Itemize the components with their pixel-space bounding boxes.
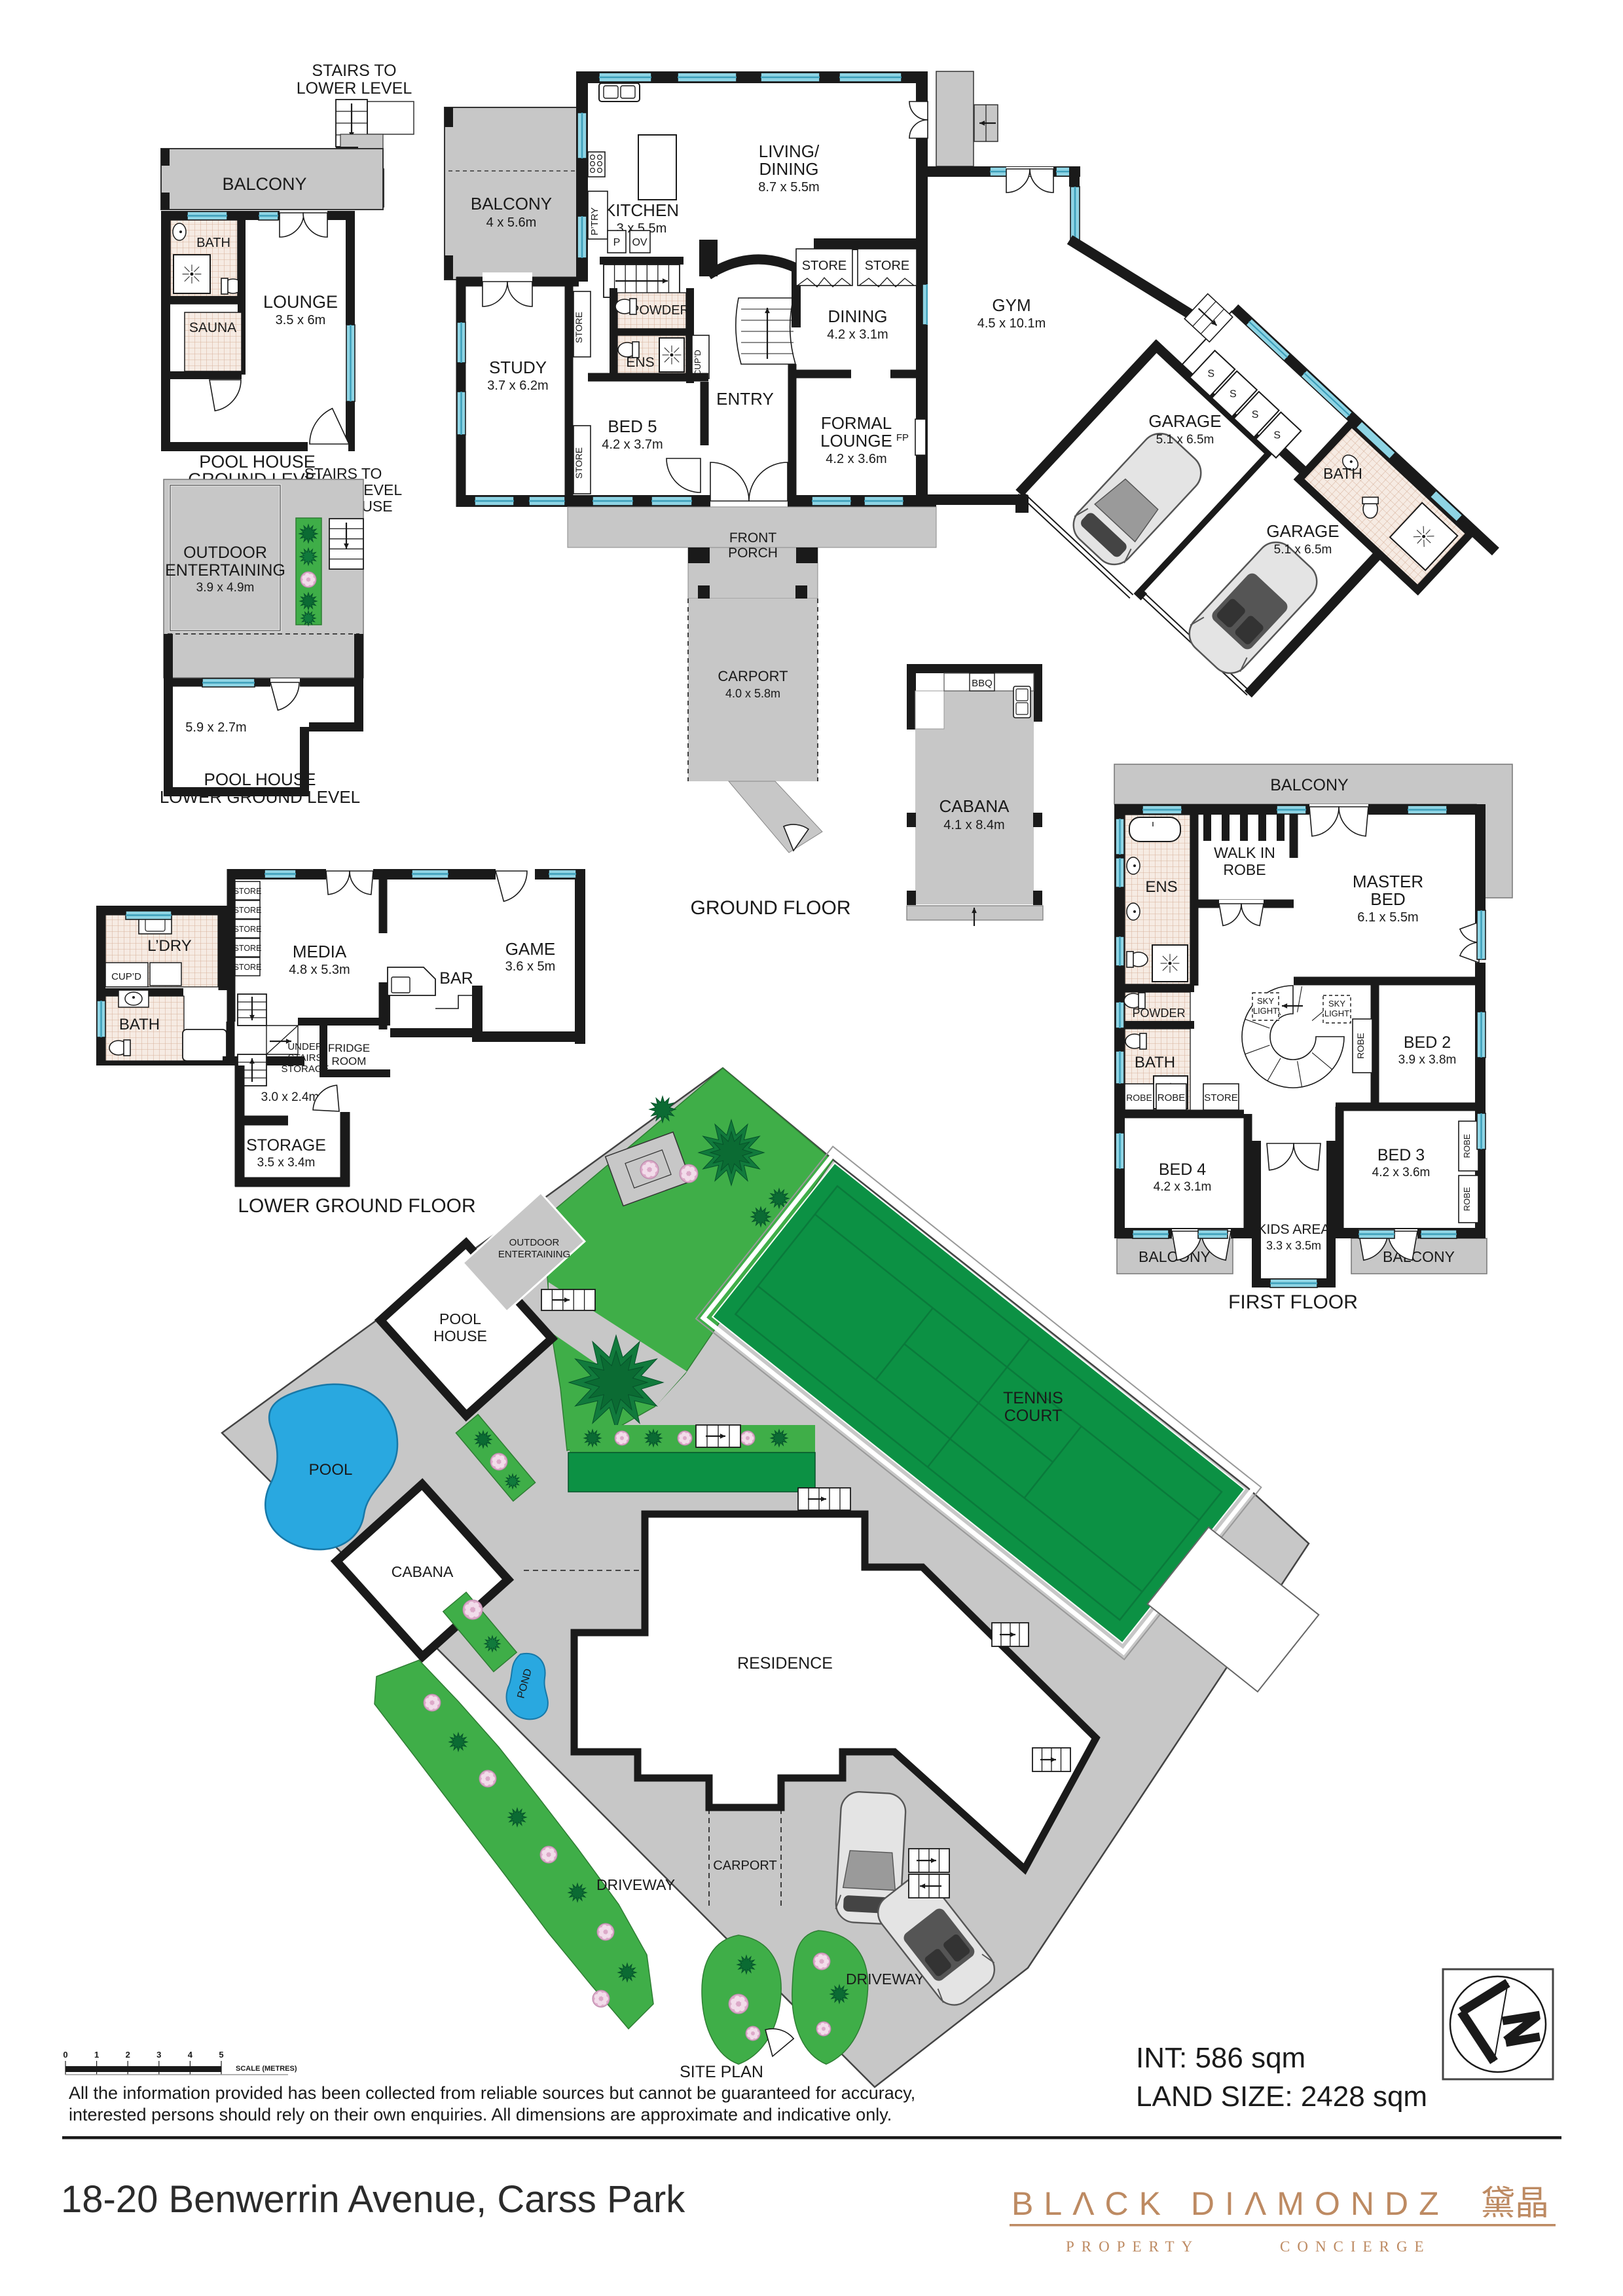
svg-text:STORE: STORE <box>234 963 262 972</box>
svg-text:ENTERTAINING: ENTERTAINING <box>498 1249 570 1260</box>
svg-text:STORE: STORE <box>234 944 262 953</box>
svg-text:GARAGE: GARAGE <box>1148 411 1221 431</box>
svg-text:OV: OV <box>632 237 647 248</box>
svg-text:4.0 x 5.8m: 4.0 x 5.8m <box>725 687 780 700</box>
svg-text:MASTER: MASTER <box>1353 872 1423 891</box>
svg-text:FORMAL: FORMAL <box>821 413 892 433</box>
svg-text:OUTDOOR: OUTDOOR <box>183 544 267 562</box>
svg-text:COURT: COURT <box>1004 1407 1062 1425</box>
svg-text:4 x 5.6m: 4 x 5.6m <box>486 215 537 230</box>
svg-text:PORCH: PORCH <box>728 546 778 561</box>
svg-text:TENNIS: TENNIS <box>1003 1389 1063 1407</box>
svg-text:BATH: BATH <box>1323 465 1362 482</box>
svg-text:4.5 x 10.1m: 4.5 x 10.1m <box>977 316 1046 331</box>
svg-text:STORAGE: STORAGE <box>246 1136 326 1155</box>
svg-text:BED 3: BED 3 <box>1377 1146 1425 1164</box>
svg-text:LIGHT: LIGHT <box>1324 1009 1349 1018</box>
svg-text:4.2 x 3.1m: 4.2 x 3.1m <box>1154 1180 1212 1194</box>
svg-text:ENS: ENS <box>1145 878 1177 896</box>
svg-text:3.6 x 5m: 3.6 x 5m <box>505 959 556 974</box>
svg-text:FP: FP <box>896 432 909 443</box>
svg-text:ROBE: ROBE <box>1355 1033 1366 1059</box>
svg-text:5.9 x 2.7m: 5.9 x 2.7m <box>185 720 246 735</box>
svg-text:All the information provided h: All the information provided has been co… <box>69 2083 915 2103</box>
svg-text:LOUNGE: LOUNGE <box>820 431 892 451</box>
svg-text:BALCONY: BALCONY <box>1383 1248 1455 1265</box>
svg-text:STORE: STORE <box>234 906 262 915</box>
svg-text:P: P <box>613 237 621 248</box>
svg-text:L’DRY: L’DRY <box>147 937 192 955</box>
svg-text:5.1 x 6.5m: 5.1 x 6.5m <box>1274 543 1332 557</box>
svg-text:KIDS AREA: KIDS AREA <box>1258 1222 1330 1237</box>
svg-text:LIVING/: LIVING/ <box>759 141 820 161</box>
svg-text:ENS: ENS <box>626 355 654 370</box>
svg-text:1: 1 <box>94 2050 99 2060</box>
svg-text:BED 4: BED 4 <box>1159 1160 1206 1179</box>
svg-text:4.8 x 5.3m: 4.8 x 5.3m <box>289 963 350 977</box>
svg-text:PROPERTY: PROPERTY <box>1066 2238 1199 2255</box>
svg-text:BED 2: BED 2 <box>1404 1033 1451 1052</box>
svg-text:5.1 x 6.5m: 5.1 x 6.5m <box>1156 433 1214 447</box>
svg-text:4.2 x 3.6m: 4.2 x 3.6m <box>826 452 886 466</box>
svg-text:2: 2 <box>126 2050 130 2060</box>
svg-text:6.1 x 5.5m: 6.1 x 5.5m <box>1357 910 1418 925</box>
svg-text:STAIRS TO: STAIRS TO <box>312 62 396 80</box>
svg-text:LOUNGE: LOUNGE <box>263 292 338 312</box>
svg-text:STUDY: STUDY <box>489 358 547 377</box>
svg-text:SAUNA: SAUNA <box>189 320 236 335</box>
svg-text:4.2 x 3.7m: 4.2 x 3.7m <box>602 437 663 452</box>
svg-text:ROBE: ROBE <box>1462 1187 1472 1211</box>
svg-text:3: 3 <box>156 2050 161 2060</box>
svg-text:8.7 x 5.5m: 8.7 x 5.5m <box>758 180 819 194</box>
svg-text:BATH: BATH <box>196 236 230 250</box>
svg-text:BALCONY: BALCONY <box>471 194 552 213</box>
svg-text:S: S <box>1230 389 1237 400</box>
svg-text:UNDER: UNDER <box>287 1041 323 1052</box>
svg-text:DRIVEWAY: DRIVEWAY <box>596 1876 675 1893</box>
svg-text:BATH: BATH <box>119 1016 160 1033</box>
svg-text:CARPORT: CARPORT <box>713 1859 776 1873</box>
svg-text:4.2 x 3.1m: 4.2 x 3.1m <box>827 327 888 342</box>
svg-text:FIRST FLOOR: FIRST FLOOR <box>1228 1291 1358 1313</box>
svg-text:STORE: STORE <box>802 259 847 273</box>
svg-text:CUP’D: CUP’D <box>693 350 702 376</box>
svg-text:GAME: GAME <box>505 939 556 959</box>
svg-text:3.0 x 2.4m: 3.0 x 2.4m <box>261 1090 319 1104</box>
svg-text:3.9 x 3.8m: 3.9 x 3.8m <box>1398 1053 1457 1067</box>
svg-text:4.2 x 3.6m: 4.2 x 3.6m <box>1372 1166 1431 1179</box>
svg-text:POOL: POOL <box>309 1461 353 1479</box>
svg-text:INT: 586 sqm: INT: 586 sqm <box>1136 2042 1305 2074</box>
svg-text:LOWER GROUND LEVEL: LOWER GROUND LEVEL <box>160 787 360 807</box>
svg-text:3.3 x 3.5m: 3.3 x 3.5m <box>1266 1239 1321 1252</box>
svg-text:DINING: DINING <box>828 306 888 326</box>
svg-text:POWDER: POWDER <box>630 303 689 318</box>
svg-text:黛晶: 黛晶 <box>1481 2185 1549 2223</box>
svg-text:BALCONY: BALCONY <box>1139 1248 1211 1265</box>
svg-text:STORE: STORE <box>1204 1092 1237 1103</box>
svg-text:BED 5: BED 5 <box>608 417 657 436</box>
svg-text:OUTDOOR: OUTDOOR <box>509 1237 560 1248</box>
svg-text:interested persons should rely: interested persons should rely on their … <box>69 2105 892 2124</box>
svg-text:STORE: STORE <box>574 312 584 343</box>
svg-text:STORE: STORE <box>865 259 910 273</box>
svg-text:BED: BED <box>1370 889 1405 909</box>
svg-text:5: 5 <box>219 2050 223 2060</box>
svg-text:BALCONY: BALCONY <box>1270 776 1349 794</box>
svg-text:0: 0 <box>63 2050 67 2060</box>
svg-text:MEDIA: MEDIA <box>293 942 347 961</box>
svg-text:S: S <box>1207 368 1214 379</box>
svg-text:LOWER LEVEL: LOWER LEVEL <box>297 79 412 98</box>
svg-text:18-20 Benwerrin Avenue, Carss: 18-20 Benwerrin Avenue, Carss Park <box>61 2178 685 2221</box>
svg-text:ROBE: ROBE <box>1126 1092 1152 1103</box>
svg-text:FRONT: FRONT <box>729 530 776 546</box>
svg-text:S: S <box>1252 409 1259 420</box>
svg-text:P’TRY: P’TRY <box>589 207 600 235</box>
svg-text:KITCHEN: KITCHEN <box>604 200 679 220</box>
svg-text:DINING: DINING <box>759 159 819 179</box>
svg-text:HOUSE: HOUSE <box>433 1327 487 1344</box>
svg-text:GARAGE: GARAGE <box>1266 521 1339 541</box>
svg-text:SKY: SKY <box>1257 996 1274 1006</box>
svg-text:3.5 x 6m: 3.5 x 6m <box>276 313 326 327</box>
svg-text:ENTRY: ENTRY <box>716 389 774 409</box>
svg-text:GYM: GYM <box>992 295 1030 315</box>
svg-text:ROOM: ROOM <box>332 1055 367 1067</box>
svg-text:POOL: POOL <box>439 1310 481 1327</box>
svg-text:ROBE: ROBE <box>1462 1134 1472 1158</box>
svg-text:BALCONY: BALCONY <box>222 174 306 194</box>
svg-text:CUP’D: CUP’D <box>111 971 141 982</box>
svg-text:CONCIERGE: CONCIERGE <box>1280 2238 1431 2255</box>
svg-text:FRIDGE: FRIDGE <box>328 1042 370 1054</box>
svg-text:BLΛCK DIΛMΟNDZ: BLΛCK DIΛMΟNDZ <box>1012 2185 1450 2222</box>
svg-text:LOWER GROUND FLOOR: LOWER GROUND FLOOR <box>238 1195 475 1217</box>
svg-text:BATH: BATH <box>1135 1054 1175 1071</box>
svg-text:WALK IN: WALK IN <box>1214 844 1275 861</box>
svg-text:S: S <box>1273 430 1281 441</box>
svg-text:STORE: STORE <box>574 447 584 479</box>
svg-text:3.5 x 3.4m: 3.5 x 3.4m <box>257 1156 316 1170</box>
svg-text:BBQ: BBQ <box>972 678 993 689</box>
svg-text:ENTERTAINING: ENTERTAINING <box>165 561 285 580</box>
svg-text:SITE PLAN: SITE PLAN <box>680 2063 763 2081</box>
svg-text:RESIDENCE: RESIDENCE <box>737 1654 833 1673</box>
svg-text:3.7 x 6.2m: 3.7 x 6.2m <box>487 379 548 393</box>
svg-text:CABANA: CABANA <box>939 796 1010 816</box>
svg-text:STAIRS: STAIRS <box>287 1052 322 1064</box>
svg-text:CABANA: CABANA <box>392 1563 454 1580</box>
svg-text:CARPORT: CARPORT <box>718 668 788 684</box>
svg-text:3.9 x 4.9m: 3.9 x 4.9m <box>196 581 255 595</box>
svg-text:LIGHT: LIGHT <box>1253 1006 1278 1016</box>
svg-text:POOL HOUSE: POOL HOUSE <box>204 769 316 789</box>
svg-text:BAR: BAR <box>439 969 473 988</box>
svg-text:4: 4 <box>188 2050 193 2060</box>
svg-text:ROBE: ROBE <box>1223 861 1266 878</box>
svg-text:STORE: STORE <box>234 887 262 896</box>
svg-text:SKY: SKY <box>1328 999 1345 1009</box>
svg-text:4.1 x 8.4m: 4.1 x 8.4m <box>943 818 1004 832</box>
svg-text:POOL HOUSE: POOL HOUSE <box>199 452 316 472</box>
svg-text:LAND SIZE: 2428 sqm: LAND SIZE: 2428 sqm <box>1136 2081 1427 2113</box>
svg-text:STORE: STORE <box>234 925 262 934</box>
svg-text:GROUND FLOOR: GROUND FLOOR <box>690 897 850 919</box>
svg-text:DRIVEWAY: DRIVEWAY <box>846 1971 924 1988</box>
svg-text:SCALE (METRES): SCALE (METRES) <box>236 2065 297 2073</box>
svg-text:ROBE: ROBE <box>1158 1092 1186 1103</box>
